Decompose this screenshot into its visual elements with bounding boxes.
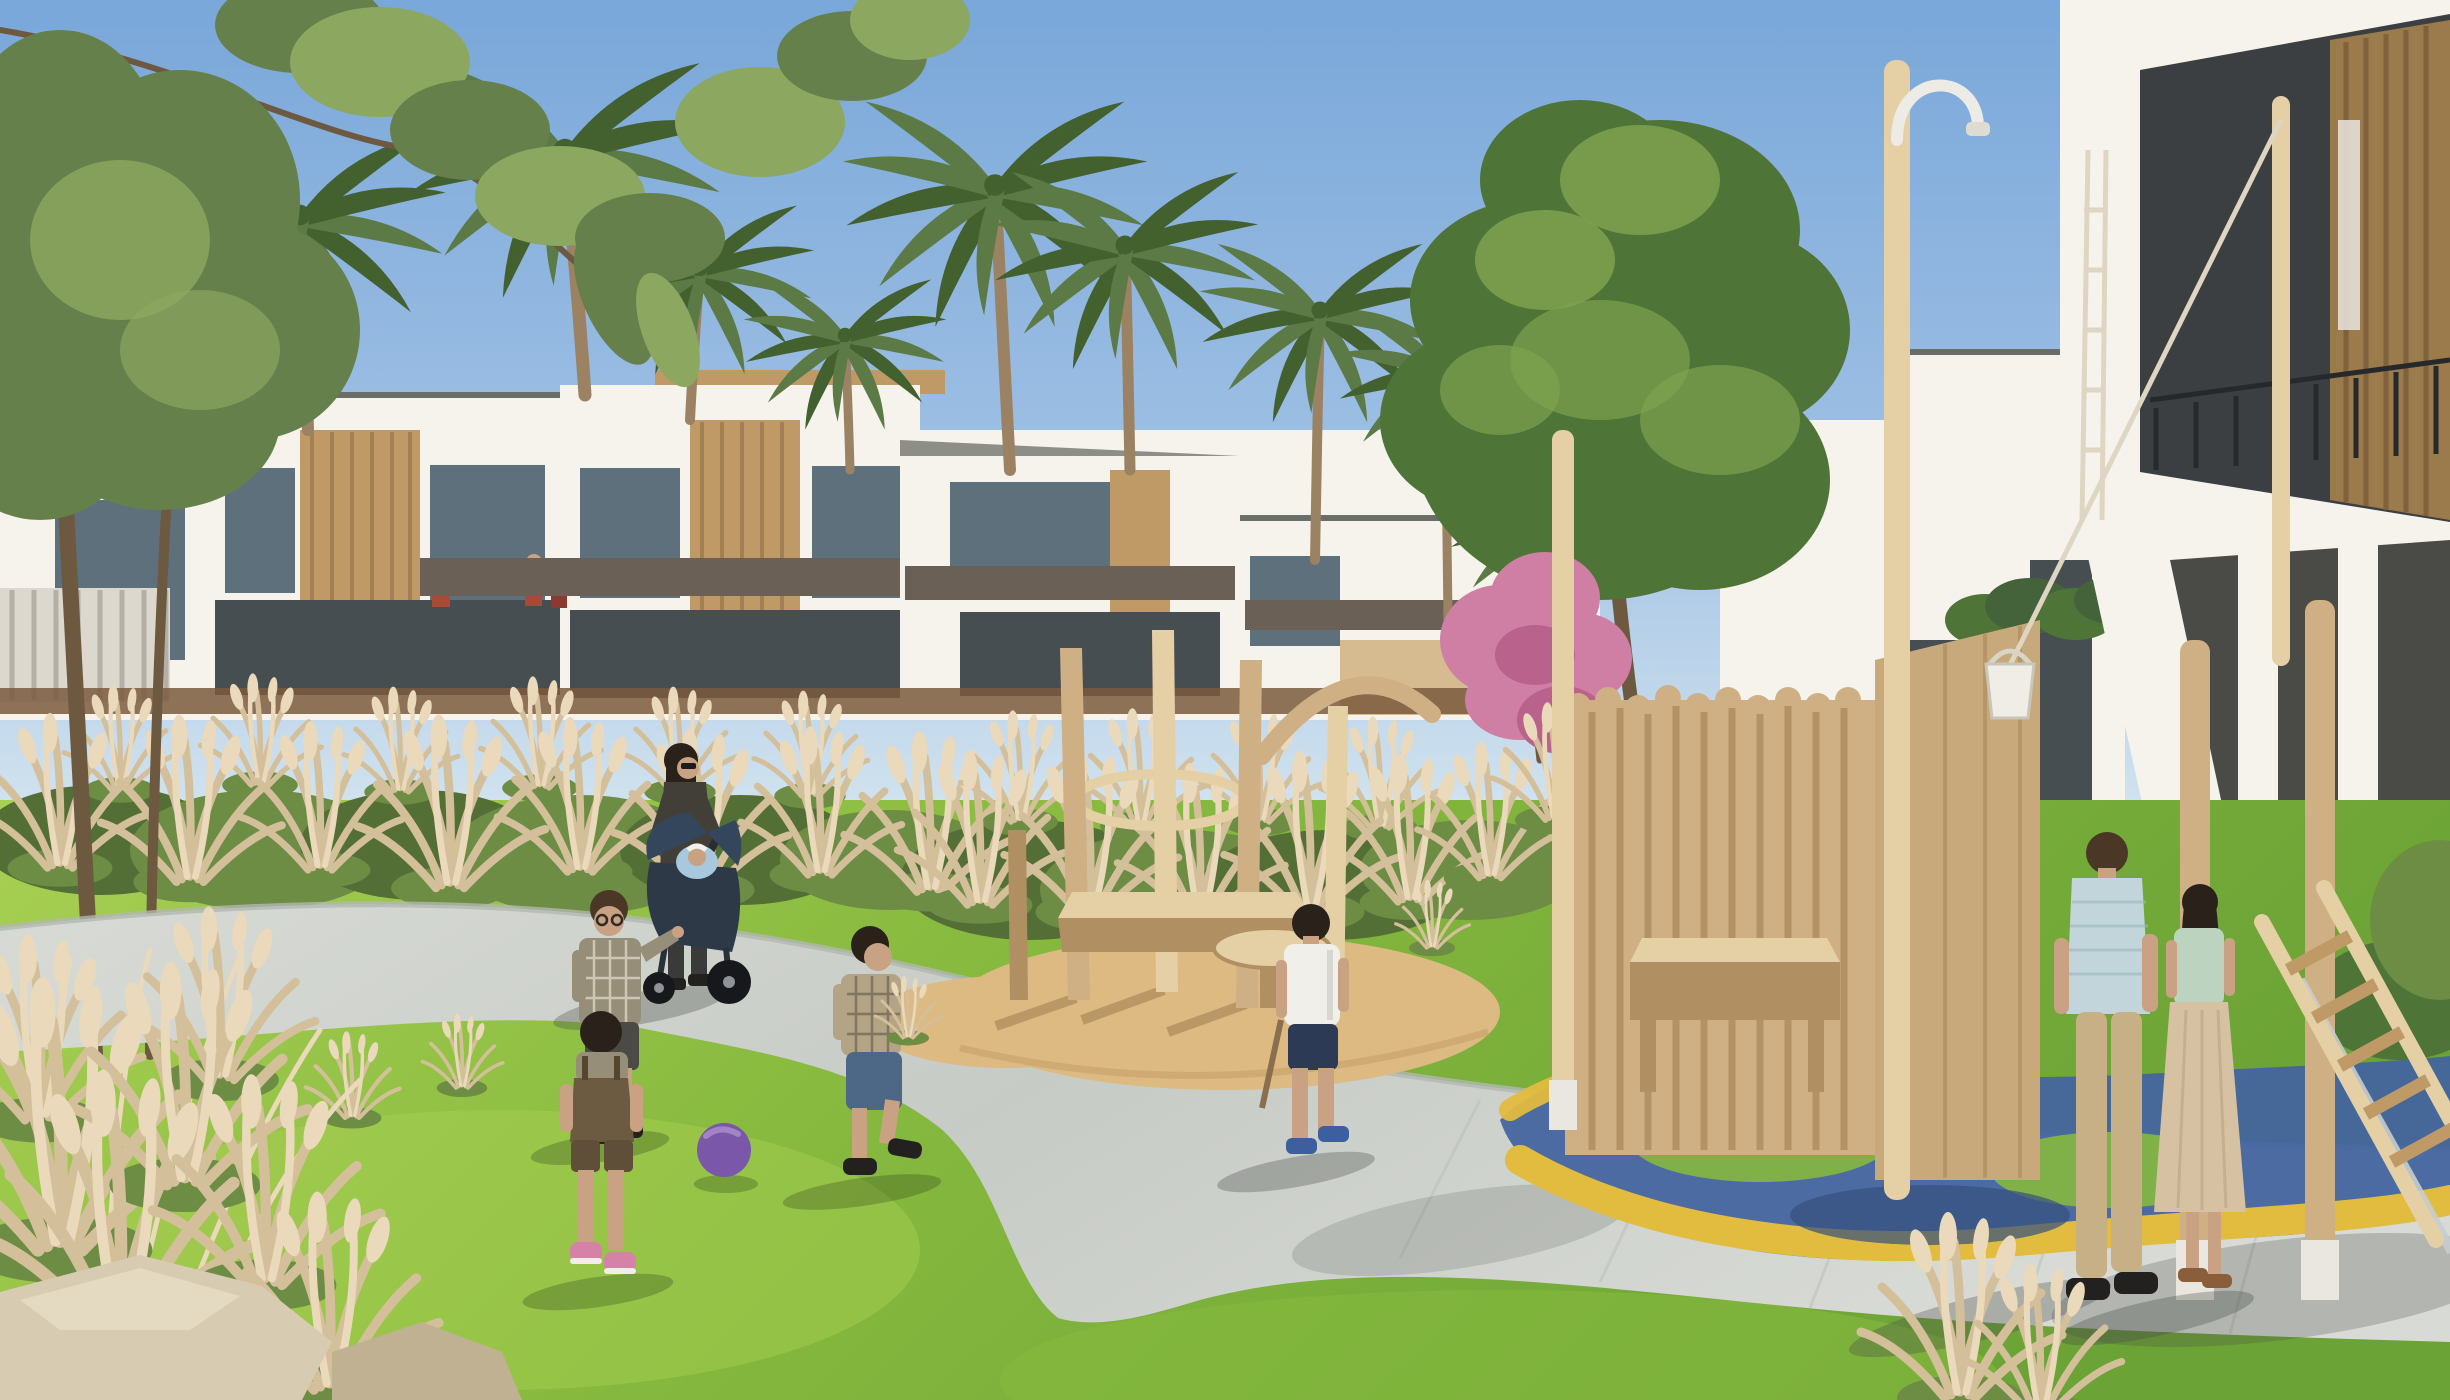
- balcony-rail: [905, 566, 1235, 600]
- community-park-render: [0, 0, 2450, 1400]
- bench-slab: [1058, 892, 1312, 918]
- recessed-panel: [950, 482, 1120, 570]
- figure-in-window: [2338, 120, 2360, 330]
- hanging-bucket: [1986, 664, 2034, 718]
- balcony-rail: [420, 558, 920, 596]
- rope-pole: [2272, 96, 2290, 666]
- deck: [1630, 938, 1840, 962]
- glass-front: [960, 612, 1220, 696]
- sunglasses: [681, 763, 696, 769]
- glass-front: [215, 600, 565, 695]
- shower-pole: [1884, 60, 1910, 1200]
- glass-front: [570, 610, 910, 698]
- surface-shadow: [1790, 1185, 2070, 1245]
- slat-fence: [0, 588, 170, 702]
- pole: [1552, 430, 1574, 1120]
- pole: [1008, 830, 1028, 1000]
- scene-canvas: [0, 0, 2450, 1400]
